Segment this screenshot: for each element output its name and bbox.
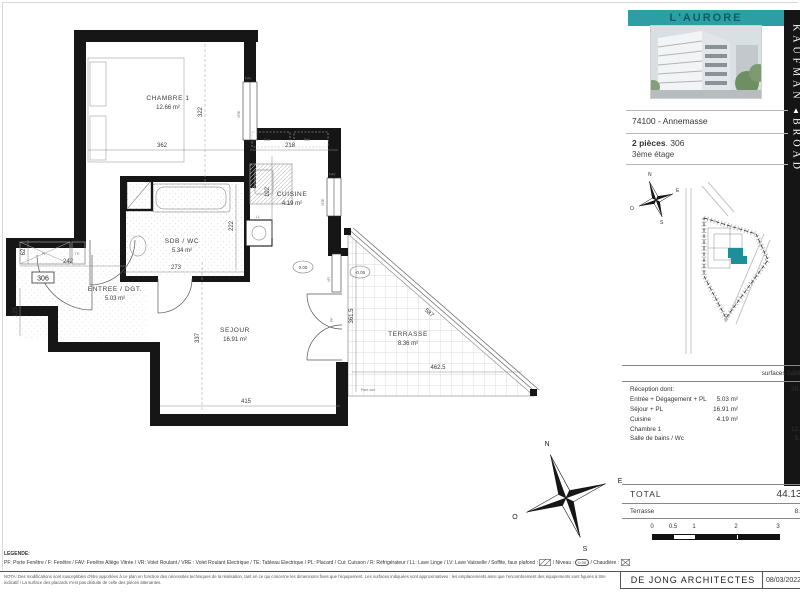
dim-sdb-width: 273 (171, 265, 182, 271)
room-chambre-area: 12.66 m² (156, 105, 180, 111)
cooktop-label: Cui. (264, 138, 270, 142)
unit-location-marker (728, 248, 747, 264)
footer-divider (0, 571, 800, 572)
dim-sejour-depth: 337 (195, 332, 201, 343)
site-compass-s: S (660, 220, 664, 226)
room-entree-area: 5.03 m² (105, 296, 125, 302)
project-title-band: L'AURORE (628, 10, 784, 26)
dim-entree-side: 125 (13, 306, 19, 317)
entree-floor-texture (16, 250, 146, 338)
level-terrasse: -0.05 (355, 270, 366, 275)
site-compass-n: N (648, 172, 652, 178)
boiler-icon (621, 559, 630, 566)
cuisine-window-vre-label: VRE (321, 198, 325, 206)
dim-cuisine-depth: 192 (265, 186, 271, 197)
location-text: 74100 - Annemasse (632, 116, 708, 126)
unit-line: 2 pièces. 306 (632, 138, 684, 148)
room-terrasse-area: 8.36 m² (398, 341, 418, 347)
table-header: surfaces habitables (630, 370, 800, 377)
closet-label: PL (42, 252, 46, 256)
dim-chambre-width: 362 (157, 143, 168, 149)
washing-machine-label: LL (256, 215, 260, 219)
sejour-window-vr (332, 254, 341, 292)
legend-title: LEGENDE: (4, 551, 30, 557)
room-chambre-name: CHAMBRE 1 (146, 95, 189, 102)
pare-vue-label: Pare-vue (361, 388, 376, 392)
site-compass-e: E (676, 188, 680, 194)
building-photo (650, 25, 762, 99)
plan-date: 08/03/2022 - (766, 577, 800, 584)
architect-name: DE JONG ARCHITECTES (628, 575, 758, 585)
developer-band: KAUFMAN ▲ BROAD (784, 10, 800, 486)
dim-chambre-depth: 322 (198, 106, 204, 117)
sdb-door-arc (158, 279, 192, 313)
room-cuisine-area: 4.19 m² (282, 201, 302, 207)
level-interior: 0.00 (299, 265, 308, 270)
room-sdb-area: 5.34 m² (172, 248, 192, 254)
site-compass-icon (632, 175, 679, 223)
room-sdb-name: SDB / WC (165, 238, 199, 245)
room-terrasse-name: TERRASSE (388, 331, 428, 338)
nota-text: NOTA: Des modifications sont susceptible… (4, 574, 614, 586)
niveau-symbol: 0.00 (575, 559, 589, 566)
total-value: 44.13 m² (630, 489, 800, 500)
dim-niche-depth: 62 (21, 248, 27, 255)
dim-terrasse-width: 462.5 (430, 365, 446, 371)
floor-plan: FAV VRE FAV VRE VR PF LL (0, 0, 632, 560)
legend-abbreviations: PF: Porte Fenêtre / F: Fenêtre / FAV: Fe… (4, 559, 616, 566)
sejour-window-vr-label: VR (327, 277, 331, 282)
room-cuisine-name: CUISINE (277, 191, 308, 198)
door-number-tag: 306 (32, 272, 54, 283)
site-plan: N E O S (624, 168, 784, 360)
developer-name-top: KAUFMAN (791, 24, 800, 103)
sejour-door-pf-label: PF (330, 317, 334, 322)
developer-logo-icon: ▲ (792, 106, 800, 115)
floor-text: 3ème étage (632, 150, 674, 159)
room-sejour-name: SEJOUR (220, 327, 250, 334)
cuisine-window-label: FAV (329, 173, 336, 177)
dim-sejour-width: 415 (241, 399, 252, 405)
compass-s: S (583, 546, 588, 553)
sejour-door-upper-arc (307, 294, 342, 329)
dim-sdb-depth: 222 (229, 220, 235, 231)
door-number: 306 (37, 276, 49, 283)
dim-terrasse-depth: 361.5 (349, 308, 355, 324)
unit-type: 2 pièces (632, 138, 666, 148)
compass-w: O (512, 514, 518, 521)
room-entree-name: ENTREE / DGT. (88, 286, 142, 293)
washing-machine (246, 220, 272, 246)
chambre-window-label: FAV (245, 77, 252, 81)
sejour-door-lower-arc (307, 325, 342, 360)
room-sejour-area: 16.91 m² (223, 337, 247, 343)
fridge-label: Réf. (304, 138, 311, 142)
unit-number: 306 (670, 138, 684, 148)
soffit-hatch-icon (539, 559, 551, 566)
terrace-value: 8.36 m² (630, 508, 800, 515)
chambre-window-vre-label: VRE (237, 110, 241, 118)
electrical-panel-label: TE (75, 252, 80, 256)
compass-n: N (544, 441, 549, 448)
site-compass-w: O (630, 206, 634, 212)
project-title: L'AURORE (669, 12, 742, 24)
dim-cuisine-width: 218 (285, 143, 296, 149)
developer-name-bottom: BROAD (791, 118, 800, 173)
dim-entree-width: 242 (63, 259, 74, 265)
compass-rose: N E O S (511, 440, 623, 553)
info-panel: L'AURORE KAUFMAN ▲ BROAD (622, 0, 800, 600)
